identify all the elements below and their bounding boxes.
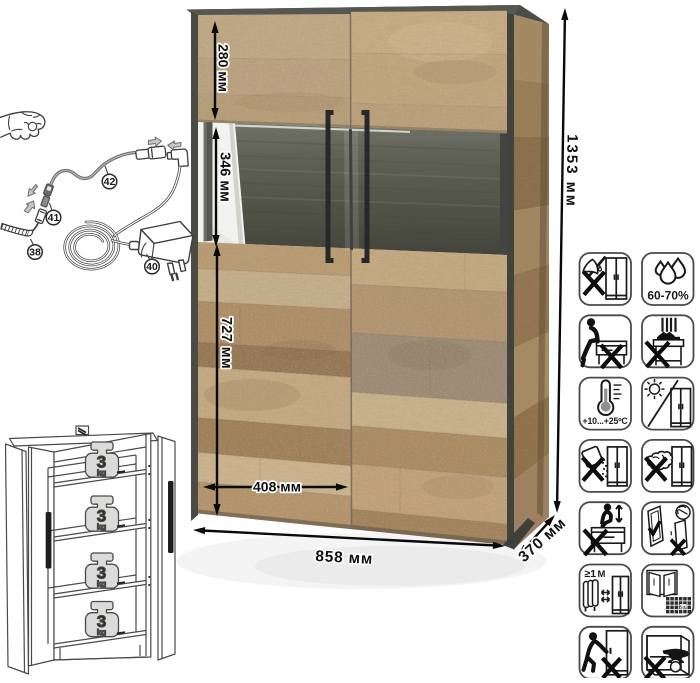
svg-text:408 мм: 408 мм <box>253 479 301 495</box>
svg-text:kg: kg <box>97 469 106 478</box>
svg-text:60-70%: 60-70% <box>647 289 689 303</box>
svg-text:kg: kg <box>97 628 106 637</box>
svg-text:42: 42 <box>104 176 116 188</box>
svg-text:kg: kg <box>97 523 106 532</box>
svg-text:40: 40 <box>146 261 158 273</box>
svg-text:346 мм: 346 мм <box>217 152 233 202</box>
svg-text:38: 38 <box>29 247 41 259</box>
svg-text:kg: kg <box>97 580 106 589</box>
svg-text:≥1: ≥1 <box>585 568 597 580</box>
svg-text:858 мм: 858 мм <box>315 548 374 568</box>
svg-text:+10...+25ºC: +10...+25ºC <box>582 416 628 426</box>
svg-text:727 мм: 727 мм <box>218 317 234 369</box>
svg-text:280 мм: 280 мм <box>216 44 232 92</box>
svg-text:25: 25 <box>679 604 687 611</box>
svg-text:M: M <box>598 569 606 580</box>
svg-text:1353 мм: 1353 мм <box>562 134 580 208</box>
svg-text:41: 41 <box>48 212 60 224</box>
